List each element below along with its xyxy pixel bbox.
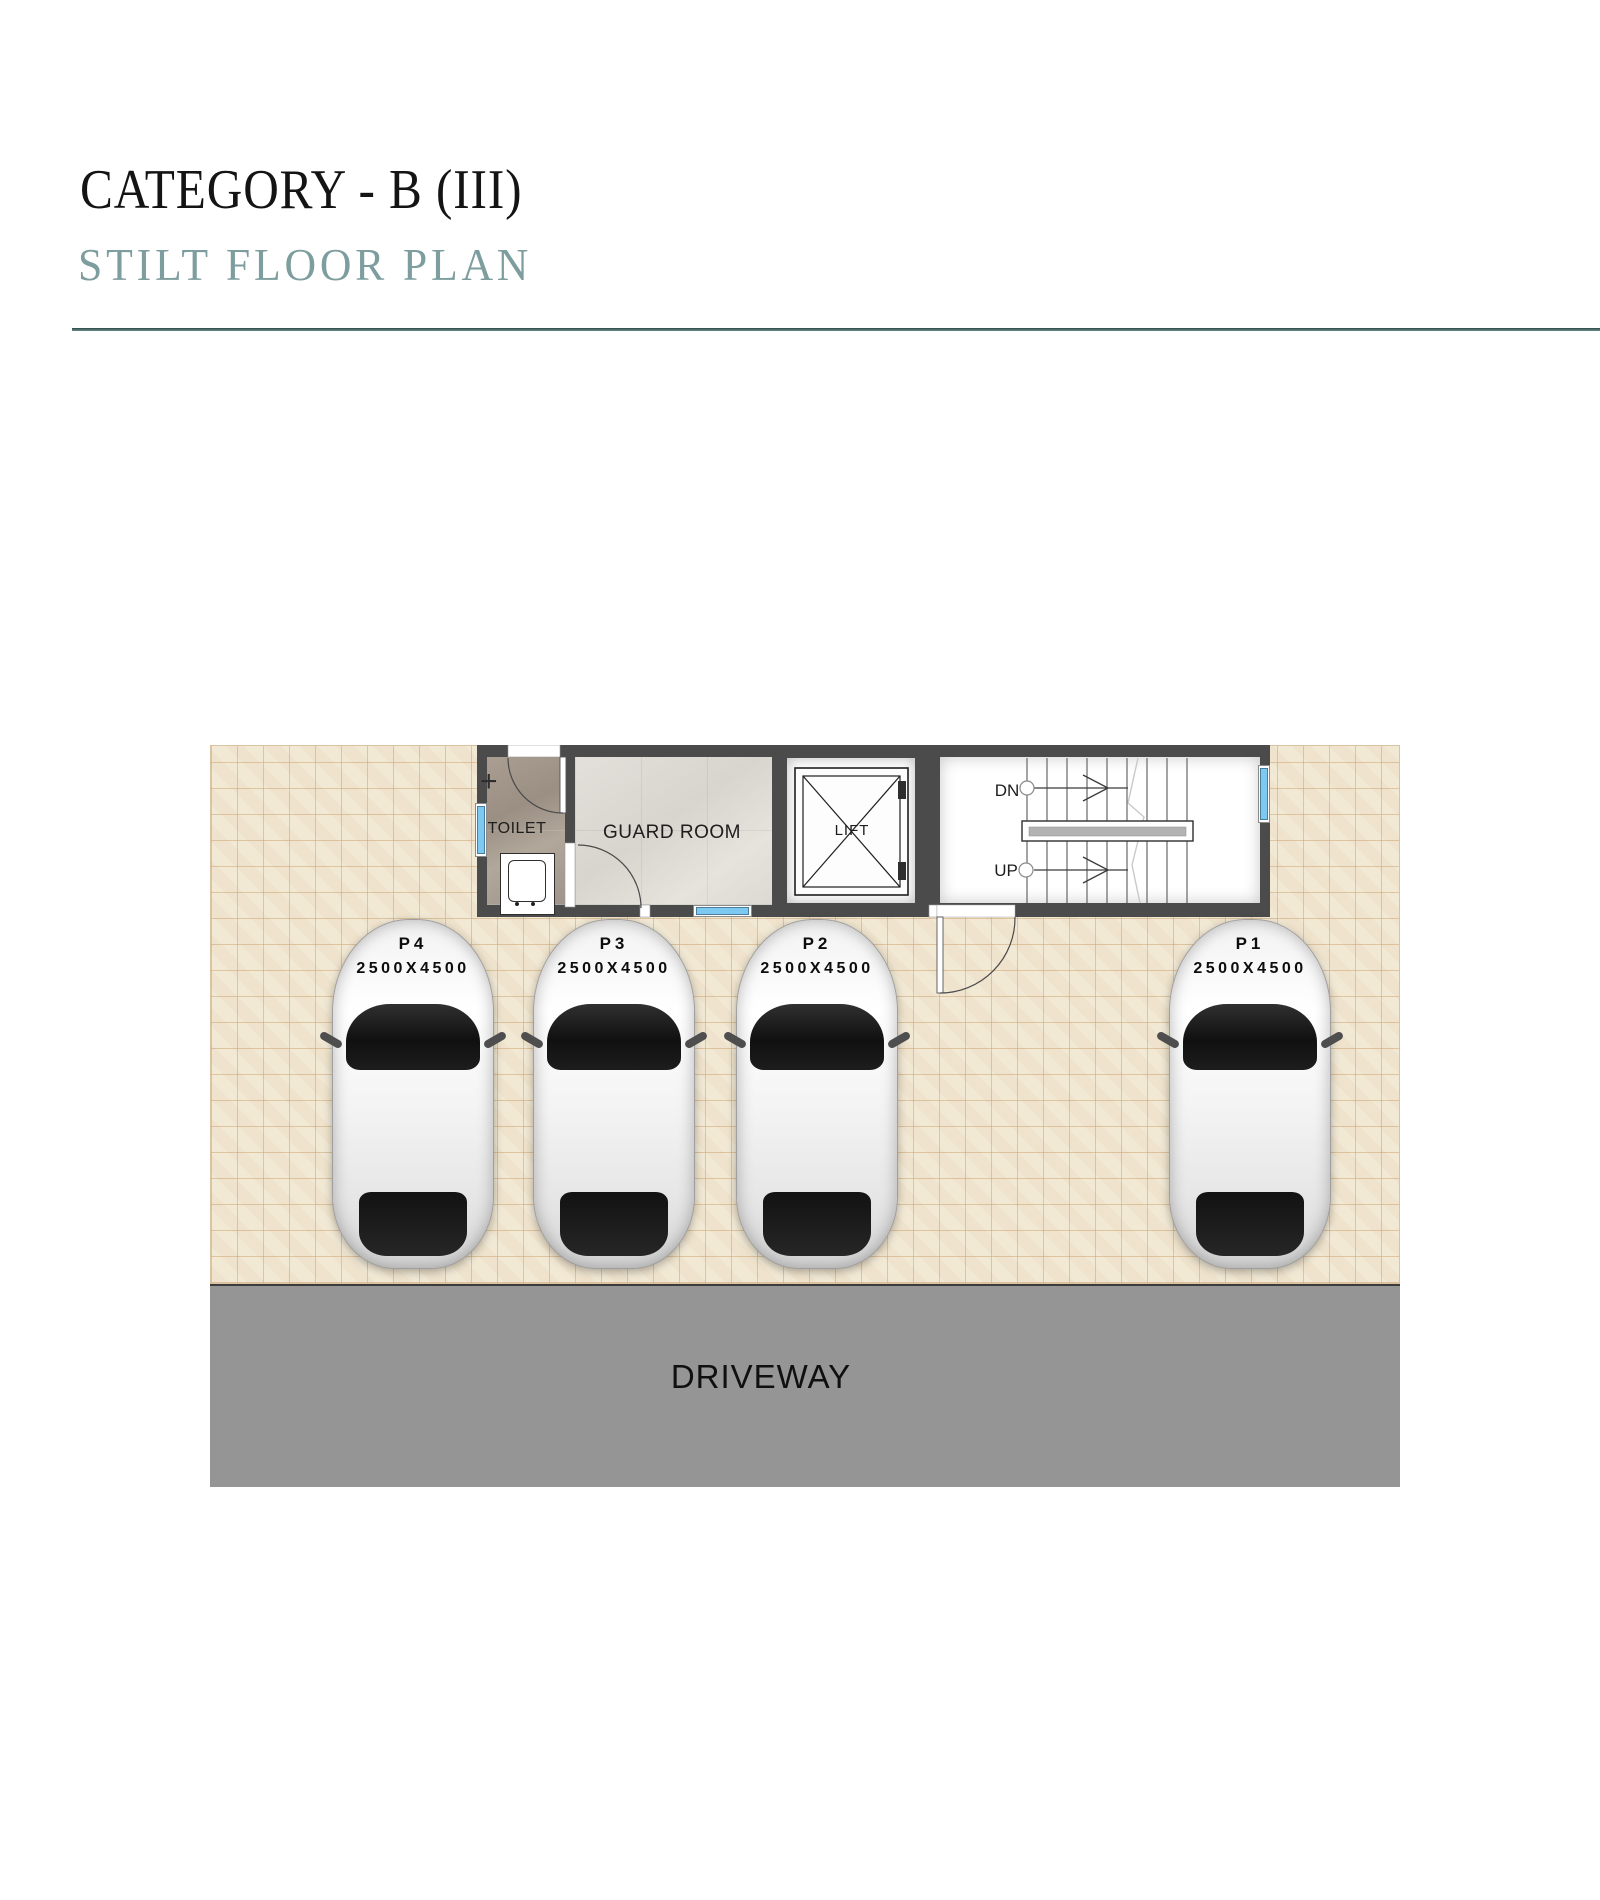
fixture-dot	[515, 902, 519, 906]
guard-room-window	[693, 905, 752, 917]
parking-spot-size: 2500X4500	[333, 960, 493, 978]
car-rear-window	[763, 1192, 871, 1256]
parking-spot-size: 2500X4500	[1170, 960, 1330, 978]
car-windshield	[346, 1004, 480, 1070]
toilet-fixture	[500, 853, 555, 915]
toilet-label: TOILET	[488, 820, 547, 838]
toilet-bowl	[508, 860, 546, 902]
fixture-dot	[531, 902, 535, 906]
parking-spot-id: P3	[534, 934, 694, 954]
stair-block	[930, 745, 1270, 917]
driveway-label: DRIVEWAY	[671, 1358, 851, 1396]
window-glass	[1260, 768, 1268, 820]
page-title: CATEGORY - B (III)	[80, 162, 522, 218]
guard-room-label: GUARD ROOM	[603, 822, 741, 844]
stairs-down-label: DN	[995, 781, 1020, 801]
stair-well	[940, 757, 1260, 903]
stairs-up-label: UP	[994, 861, 1018, 881]
brochure-page: CATEGORY - B (III) STILT FLOOR PLAN DRIV…	[0, 0, 1600, 1900]
car-rear-window	[359, 1192, 467, 1256]
car-windshield	[1183, 1004, 1317, 1070]
stilt-floor-plan: DRIVEWAY	[210, 745, 1400, 1487]
parking-spot-id: P1	[1170, 934, 1330, 954]
header-divider	[72, 328, 1600, 331]
cross-marker: +	[480, 767, 498, 797]
parked-car-p4: P4 2500X4500	[333, 920, 493, 1268]
parking-spot-size: 2500X4500	[534, 960, 694, 978]
parked-car-p1: P1 2500X4500	[1170, 920, 1330, 1268]
window-glass	[696, 907, 749, 915]
toilet-window	[475, 803, 487, 857]
parked-car-p2: P2 2500X4500	[737, 920, 897, 1268]
parking-spot-id: P4	[333, 934, 493, 954]
driveway-area: DRIVEWAY	[210, 1284, 1400, 1487]
car-rear-window	[560, 1192, 668, 1256]
car-windshield	[750, 1004, 884, 1070]
lift-label: LIFT	[835, 822, 870, 839]
parking-spot-id: P2	[737, 934, 897, 954]
stair-window	[1258, 765, 1270, 823]
page-subtitle: STILT FLOOR PLAN	[78, 242, 532, 288]
window-glass	[477, 806, 485, 854]
car-windshield	[547, 1004, 681, 1070]
car-rear-window	[1196, 1192, 1304, 1256]
parking-spot-size: 2500X4500	[737, 960, 897, 978]
parked-car-p3: P3 2500X4500	[534, 920, 694, 1268]
